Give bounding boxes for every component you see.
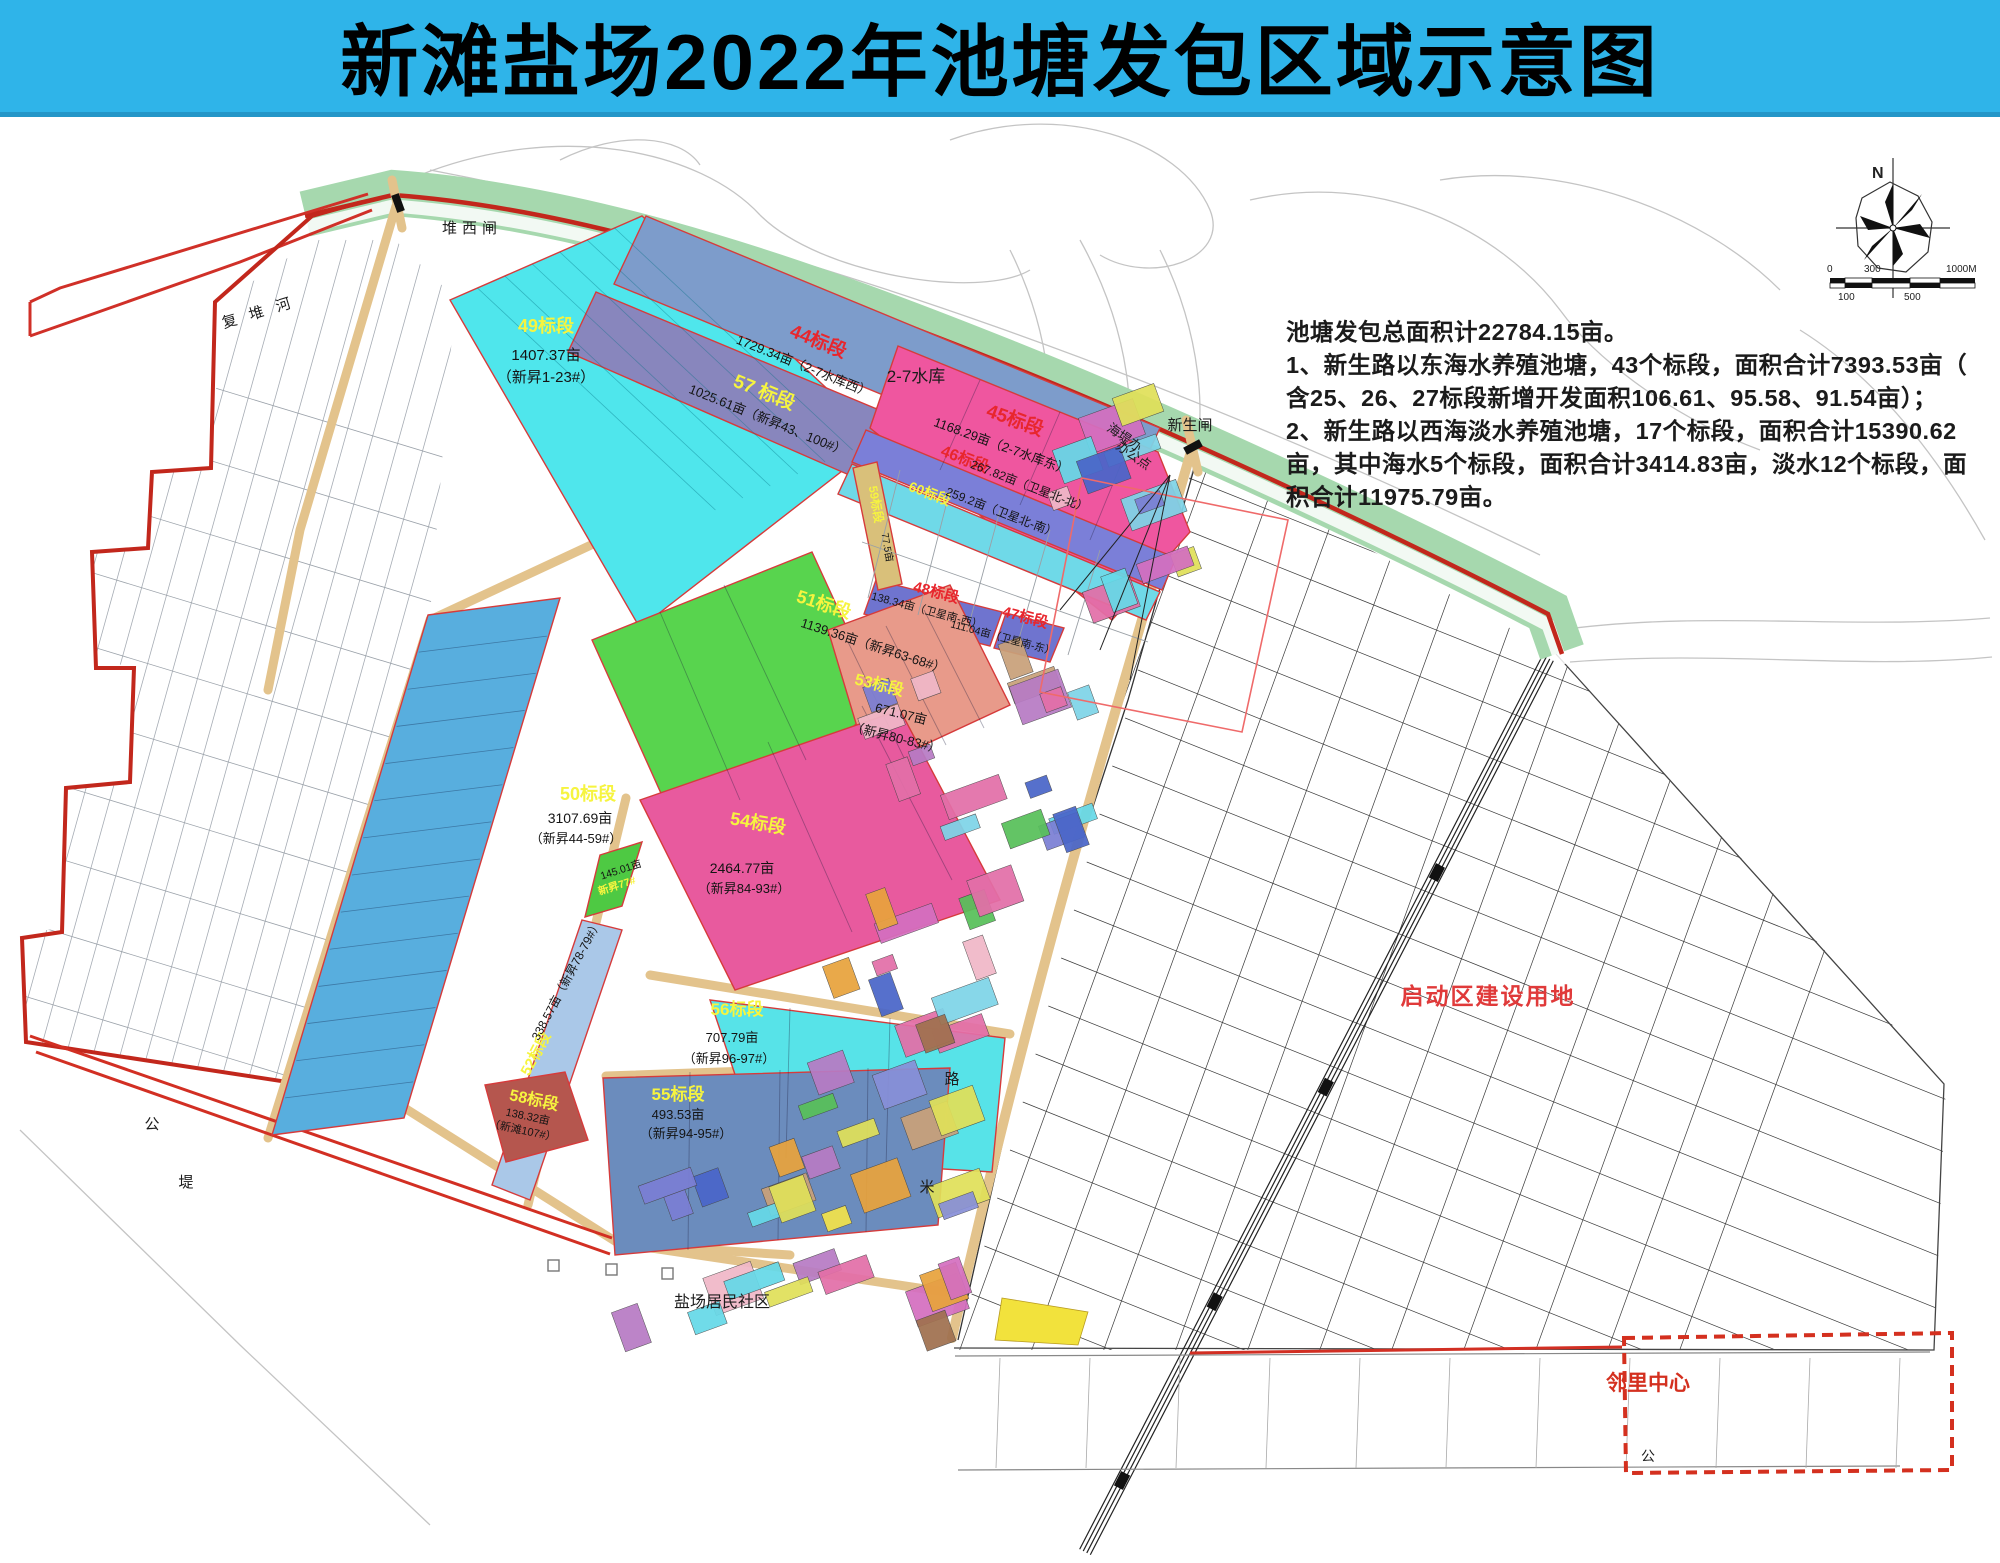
linli-center-label: 邻里中心 — [1606, 1371, 1690, 1395]
scale-0: 0 — [1827, 264, 1833, 275]
road-char: 堤 — [178, 1174, 193, 1191]
community-label: 盐场居民社区 — [674, 1293, 770, 1311]
region-50[interactable] — [272, 598, 560, 1135]
region-ponds: （新昇96-97#） — [683, 1051, 775, 1066]
scale-100: 100 — [1838, 292, 1855, 303]
small-parcel[interactable] — [872, 954, 898, 976]
linli-center-boundary[interactable] — [1624, 1333, 1952, 1473]
region-label: 56标段 — [711, 999, 764, 1019]
small-parcel[interactable] — [963, 935, 997, 980]
scale-1000: 1000M — [1946, 264, 1977, 275]
notes-line: 1、新生路以东海水养殖池塘，43个标段，面积合计7393.53亩（ — [1286, 349, 1958, 382]
region-ponds: （新昇1-23#） — [497, 369, 595, 386]
map-page: 49标段 1407.37亩 （新昇1-23#） 44标段 1729.34亩（2-… — [0, 0, 2000, 1563]
scale-bar: 0 300 1000M 100 500 — [1827, 264, 1977, 303]
small-parcel[interactable] — [995, 1298, 1088, 1345]
title-bar: 新滩盐场2022年池塘发包区域示意图 — [0, 0, 2000, 117]
region-area: 1407.37亩 — [511, 346, 580, 364]
notes-block: 池塘发包总面积计22784.15亩。 1、新生路以东海水养殖池塘，43个标段，面… — [1286, 316, 1958, 514]
bottom-strip-parcels — [955, 1352, 1930, 1470]
duixizha-label: 堆西闸 — [442, 220, 502, 237]
small-parcel[interactable] — [940, 774, 1007, 819]
fuduihe-label: 复堆河 — [220, 290, 306, 332]
region-ponds: （新昇44-59#） — [530, 831, 622, 846]
reservoir-label: 2-7水库 — [887, 367, 946, 386]
region-area: 2464.77亩 — [710, 860, 775, 876]
xinshengzha-label: 新生闸 — [1167, 417, 1212, 434]
road-char: 公 — [144, 1116, 159, 1133]
compass-rose: N — [1836, 158, 1950, 298]
region-ponds: （新昇94-95#） — [640, 1126, 732, 1141]
community-buildings — [548, 1260, 673, 1279]
road-char: 米 — [919, 1179, 934, 1196]
region-area: 707.79亩 — [706, 1030, 759, 1045]
region-ponds: （新昇84-93#） — [698, 881, 790, 896]
corridor-lines — [1080, 655, 1554, 1555]
scale-300: 300 — [1864, 264, 1881, 275]
small-parcel[interactable] — [611, 1303, 651, 1351]
small-parcel[interactable] — [1001, 809, 1050, 849]
page-title: 新滩盐场2022年池塘发包区域示意图 — [340, 0, 1660, 112]
notes-line: 2、新生路以西海淡水养殖池塘，17个标段，面积合计15390.62 — [1286, 415, 1958, 448]
map-canvas: 49标段 1407.37亩 （新昇1-23#） 44标段 1729.34亩（2-… — [0, 0, 2000, 1563]
notes-line: 亩，其中海水5个标段，面积合计3414.83亩，淡水12个标段，面 — [1286, 448, 1958, 481]
region-label: 50标段 — [560, 783, 617, 804]
region-area: 3107.69亩 — [548, 810, 613, 826]
compass-n-label: N — [1872, 165, 1884, 182]
startup-zone-label: 启动区建设用地 — [1401, 983, 1576, 1009]
notes-line: 池塘发包总面积计22784.15亩。 — [1286, 316, 1958, 349]
region-area: 493.53亩 — [652, 1107, 705, 1122]
notes-line: 积合计11975.79亩。 — [1286, 481, 1958, 514]
road-char: 路 — [944, 1071, 959, 1088]
notes-line: 含25、26、27标段新增开发面积106.61、95.58、91.54亩）； — [1286, 382, 1958, 415]
region-label: 55标段 — [652, 1084, 705, 1104]
small-parcel[interactable] — [1025, 775, 1052, 798]
road-char: 公 — [1641, 1448, 1655, 1464]
startup-zone-grid — [815, 400, 2000, 1563]
region-label: 49标段 — [518, 315, 575, 336]
small-parcel[interactable] — [822, 957, 860, 998]
scale-500: 500 — [1904, 292, 1921, 303]
